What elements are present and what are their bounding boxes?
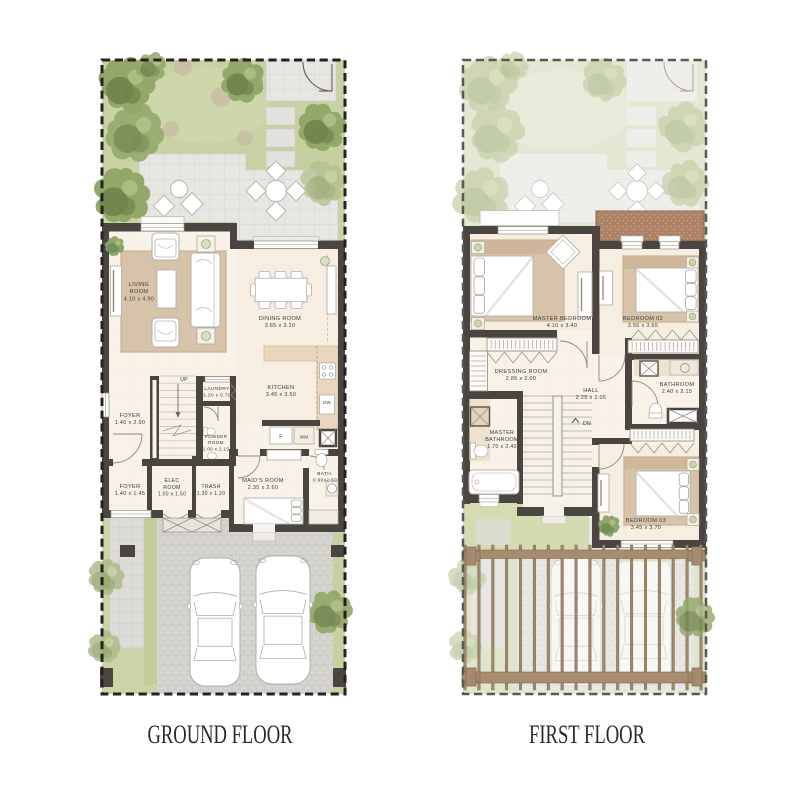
svg-text:1.20 x 0.70: 1.20 x 0.70 [203, 392, 231, 398]
svg-text:BEDROOM 02: BEDROOM 02 [623, 316, 663, 322]
svg-text:HALL: HALL [583, 388, 598, 394]
svg-text:2.85 x 2.00: 2.85 x 2.00 [506, 376, 537, 382]
svg-text:1.70 x 3.40: 1.70 x 3.40 [487, 444, 517, 450]
svg-text:2.35 x 2.60: 2.35 x 2.60 [248, 485, 279, 491]
svg-text:MAID’S ROOM: MAID’S ROOM [242, 478, 284, 484]
svg-text:ELEC: ELEC [165, 478, 180, 484]
svg-text:FOYER: FOYER [119, 484, 140, 490]
svg-text:3.45 x 3.50: 3.45 x 3.50 [266, 392, 297, 398]
svg-text:BATHROOM: BATHROOM [660, 382, 695, 388]
svg-text:FOYER: FOYER [119, 413, 140, 419]
svg-text:0.90x2.60: 0.90x2.60 [313, 477, 337, 483]
svg-text:DW: DW [323, 400, 331, 405]
svg-text:3.65 x 3.10: 3.65 x 3.10 [265, 323, 296, 329]
svg-text:MASTER: MASTER [490, 430, 515, 436]
svg-text:4.10 x 3.40: 4.10 x 3.40 [547, 323, 578, 329]
svg-text:2.25 x 2.05: 2.25 x 2.05 [576, 395, 607, 401]
svg-text:4.10 x 4.90: 4.10 x 4.90 [124, 296, 155, 302]
svg-text:KITCHEN: KITCHEN [267, 385, 294, 391]
svg-text:1.30 x 1.20: 1.30 x 1.20 [197, 491, 226, 497]
svg-text:1.40 x 2.90: 1.40 x 2.90 [115, 420, 146, 426]
svg-text:DINING ROOM: DINING ROOM [259, 316, 301, 322]
svg-text:GROUND FLOOR: GROUND FLOOR [148, 720, 293, 749]
svg-text:3.55 x 3.65: 3.55 x 3.65 [628, 323, 659, 329]
svg-text:2.40 x 2.15: 2.40 x 2.15 [662, 389, 693, 395]
svg-text:WM: WM [300, 435, 309, 440]
svg-text:MASTER BEDROOM: MASTER BEDROOM [533, 316, 592, 322]
svg-text:DRESSING ROOM: DRESSING ROOM [495, 369, 548, 375]
svg-text:1.00 x 1.50: 1.00 x 1.50 [158, 492, 187, 498]
svg-text:LAUNDRY: LAUNDRY [204, 386, 230, 392]
svg-text:ROOM: ROOM [163, 485, 181, 491]
svg-text:UP: UP [180, 377, 188, 383]
svg-text:3.45 x 3.70: 3.45 x 3.70 [631, 525, 662, 531]
svg-text:LIVING: LIVING [129, 282, 149, 288]
svg-text:BEDROOM 03: BEDROOM 03 [626, 518, 666, 524]
svg-text:ROOM: ROOM [130, 289, 149, 295]
svg-text:DN: DN [583, 421, 591, 427]
svg-text:POWDER: POWDER [205, 434, 228, 439]
svg-text:ROOM: ROOM [208, 440, 224, 445]
svg-text:1.40 x 1.45: 1.40 x 1.45 [115, 491, 146, 497]
svg-text:BATH.: BATH. [317, 471, 333, 477]
svg-text:1.00 x 2.15: 1.00 x 2.15 [203, 446, 230, 451]
svg-text:F: F [279, 435, 283, 441]
svg-text:FIRST FLOOR: FIRST FLOOR [529, 720, 645, 749]
svg-text:BATHROOM: BATHROOM [485, 437, 519, 443]
svg-text:TRASH: TRASH [201, 484, 220, 490]
